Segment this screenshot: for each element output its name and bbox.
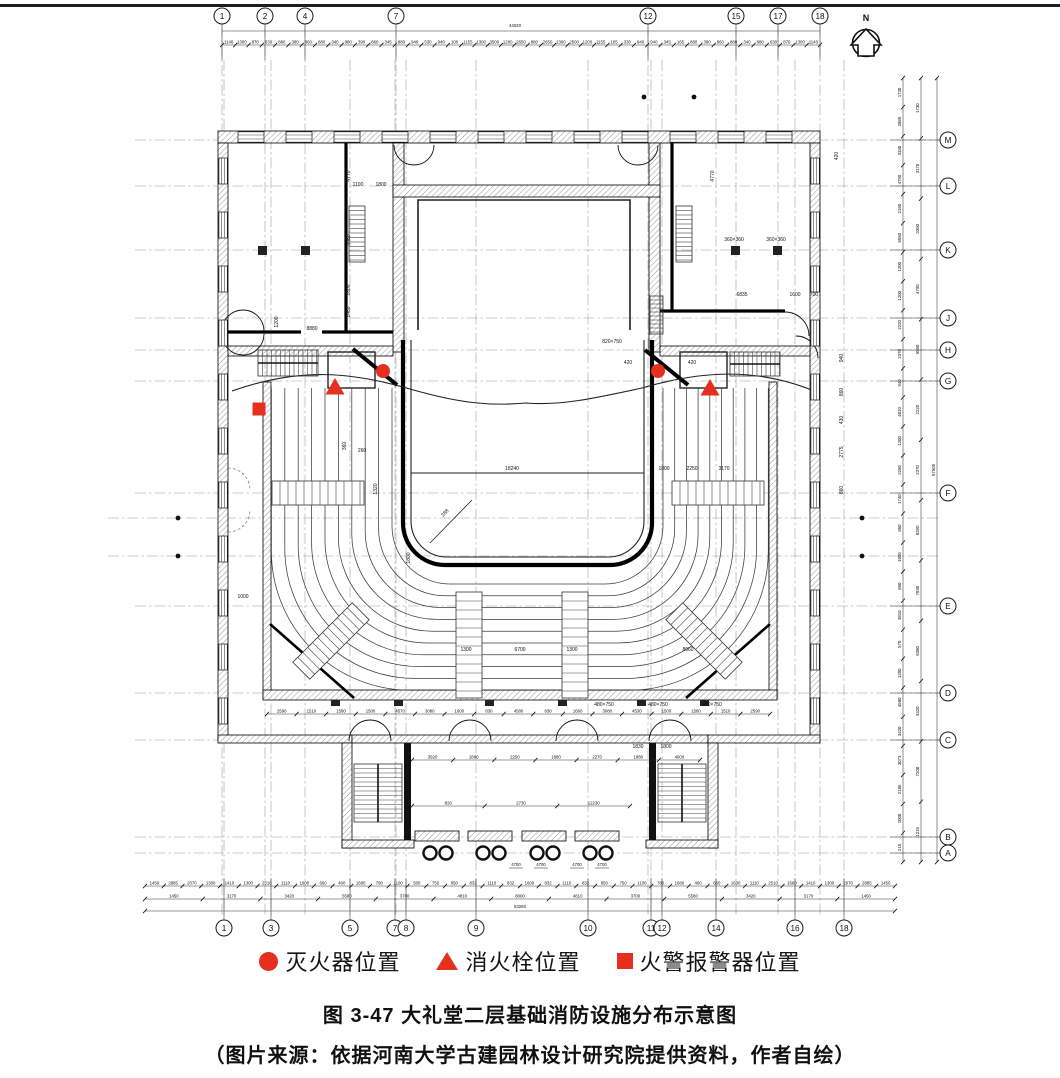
bowl-south-wall (263, 690, 777, 700)
svg-text:1480: 1480 (346, 306, 352, 317)
svg-text:7630: 7630 (915, 585, 920, 595)
svg-text:17: 17 (773, 12, 783, 21)
svg-text:1300: 1300 (566, 647, 577, 653)
svg-text:780: 780 (657, 880, 665, 885)
svg-text:1510: 1510 (307, 708, 317, 713)
svg-text:2250: 2250 (897, 465, 902, 475)
svg-text:2775: 2775 (839, 446, 845, 457)
svg-text:B: B (945, 833, 951, 842)
svg-text:1410: 1410 (225, 880, 235, 885)
svg-text:400: 400 (338, 880, 346, 885)
north-label: N (863, 13, 870, 23)
svg-text:18: 18 (815, 12, 825, 21)
stage-west-wall (393, 143, 404, 352)
svg-text:H: H (945, 346, 951, 355)
fire-extinguisher-marker (651, 364, 665, 378)
svg-text:1110: 1110 (750, 880, 760, 885)
svg-text:1300: 1300 (243, 880, 253, 885)
svg-text:165: 165 (677, 39, 685, 44)
floor-plan-drawing: 4402011401300870630880380860880340880390… (0, 0, 1060, 940)
lobby-north-wall (352, 735, 708, 743)
svg-text:4570: 4570 (395, 708, 405, 713)
svg-text:J: J (946, 314, 950, 323)
svg-text:1155: 1155 (596, 39, 606, 44)
svg-text:2885: 2885 (168, 880, 178, 885)
svg-text:1680: 1680 (675, 880, 685, 885)
svg-text:850: 850 (601, 880, 609, 885)
svg-text:1450: 1450 (881, 880, 891, 885)
svg-text:1800: 1800 (897, 552, 902, 562)
svg-text:2185: 2185 (897, 784, 902, 794)
svg-text:4530: 4530 (632, 708, 642, 713)
svg-text:1200: 1200 (897, 261, 902, 271)
svg-text:345: 345 (664, 39, 672, 44)
svg-text:5580: 5580 (688, 893, 698, 898)
svg-text:880: 880 (757, 39, 765, 44)
svg-text:1320: 1320 (373, 483, 379, 494)
svg-text:5550: 5550 (915, 344, 920, 354)
legend-label: 火警报警器位置 (640, 945, 801, 977)
svg-text:1410: 1410 (806, 880, 816, 885)
svg-text:880: 880 (278, 39, 286, 44)
svg-text:1510: 1510 (721, 708, 731, 713)
svg-text:8060: 8060 (682, 647, 693, 653)
svg-text:C: C (945, 736, 951, 745)
svg-text:1880: 1880 (469, 754, 479, 759)
svg-text:820×750: 820×750 (602, 339, 622, 345)
svg-text:1200: 1200 (583, 39, 593, 44)
svg-text:3350: 3350 (915, 223, 920, 233)
lobby-south-wall-east (646, 840, 718, 848)
figure-page: 4402011401300870630880380860880340880390… (0, 0, 1060, 1078)
entrance-colonnade (415, 831, 619, 860)
svg-text:7: 7 (393, 924, 398, 933)
svg-text:860: 860 (305, 39, 313, 44)
circle-symbol-icon (259, 952, 278, 971)
svg-text:1200: 1200 (897, 436, 902, 446)
svg-text:L: L (946, 182, 951, 191)
svg-text:1730: 1730 (897, 87, 902, 97)
svg-text:4700: 4700 (536, 862, 546, 867)
svg-text:8880: 8880 (306, 326, 317, 332)
svg-text:1200: 1200 (503, 39, 513, 44)
svg-text:12230: 12230 (588, 800, 601, 805)
svg-text:4000: 4000 (675, 754, 685, 759)
columns (258, 246, 782, 255)
svg-text:3080: 3080 (602, 708, 612, 713)
svg-text:2650: 2650 (543, 39, 553, 44)
window-symbols (219, 132, 819, 724)
svg-text:4580: 4580 (514, 708, 524, 713)
svg-text:3810: 3810 (897, 610, 902, 620)
svg-text:4770: 4770 (710, 170, 716, 181)
svg-text:880: 880 (318, 39, 326, 44)
triangle-symbol-icon (436, 952, 458, 970)
svg-text:6835: 6835 (736, 292, 747, 298)
svg-text:2370: 2370 (915, 465, 920, 475)
left-wing-partitions (228, 143, 393, 332)
svg-text:3420: 3420 (746, 893, 756, 898)
svg-text:2885: 2885 (897, 116, 902, 126)
svg-text:A: A (945, 849, 951, 858)
svg-text:16: 16 (790, 924, 800, 933)
svg-text:2070: 2070 (187, 880, 197, 885)
svg-text:1600: 1600 (789, 292, 800, 298)
svg-text:1110: 1110 (487, 880, 497, 885)
svg-text:1215: 1215 (915, 826, 920, 836)
svg-text:3170: 3170 (718, 466, 729, 472)
svg-text:1450: 1450 (861, 893, 871, 898)
svg-text:3420: 3420 (915, 706, 920, 716)
legend-label: 灭火器位置 (285, 945, 400, 977)
svg-text:832: 832 (582, 880, 590, 885)
svg-text:3420: 3420 (284, 893, 294, 898)
svg-text:420: 420 (688, 360, 697, 366)
svg-text:630: 630 (770, 39, 778, 44)
svg-text:1300: 1300 (825, 880, 835, 885)
svg-text:2590: 2590 (277, 708, 287, 713)
svg-text:850: 850 (451, 880, 459, 885)
svg-text:1300: 1300 (460, 647, 471, 653)
svg-text:K: K (945, 246, 951, 255)
ramp-line (430, 500, 472, 543)
svg-text:1600: 1600 (455, 708, 465, 713)
svg-text:880: 880 (690, 39, 698, 44)
lobby-west-wall (342, 743, 352, 848)
svg-text:1100: 1100 (353, 182, 364, 188)
svg-text:345: 345 (385, 39, 393, 44)
svg-text:1140: 1140 (809, 39, 819, 44)
svg-text:8390: 8390 (915, 525, 920, 535)
svg-text:8: 8 (404, 924, 409, 933)
svg-text:1300: 1300 (476, 39, 486, 44)
legend-item-triangle: 消火栓位置 (436, 945, 580, 977)
svg-text:530: 530 (424, 39, 432, 44)
figure-source: （图片来源：依据河南大学古建园林设计研究院提供资料，作者自绘） (0, 1039, 1060, 1068)
svg-text:1880: 1880 (634, 754, 644, 759)
svg-text:3920: 3920 (428, 754, 438, 759)
svg-text:1830: 1830 (632, 744, 643, 750)
fire-safety-markers (253, 364, 720, 416)
svg-text:3080: 3080 (425, 708, 435, 713)
svg-text:1600: 1600 (731, 880, 741, 885)
svg-text:480×750: 480×750 (648, 702, 668, 708)
lobby-south-wall-west (342, 840, 414, 848)
svg-text:4580: 4580 (897, 697, 902, 707)
svg-text:5: 5 (348, 924, 353, 933)
svg-text:360×360: 360×360 (766, 237, 786, 243)
svg-text:1100: 1100 (637, 880, 647, 885)
svg-text:1740: 1740 (897, 494, 902, 504)
fire-extinguisher-marker (376, 364, 390, 378)
svg-text:1500: 1500 (662, 708, 672, 713)
balcony-void-inner (411, 340, 644, 557)
svg-text:10: 10 (583, 924, 593, 933)
fire-alarm-marker (253, 403, 266, 416)
svg-text:1: 1 (220, 12, 225, 21)
svg-text:2220: 2220 (915, 404, 920, 414)
svg-text:4700: 4700 (572, 862, 582, 867)
svg-text:660: 660 (320, 880, 328, 885)
svg-text:830: 830 (485, 708, 493, 713)
svg-text:3700: 3700 (631, 893, 641, 898)
svg-text:4790: 4790 (897, 174, 902, 184)
stage-lining (418, 200, 630, 330)
legend-item-square: 火警报警器位置 (617, 945, 801, 977)
svg-text:1300: 1300 (795, 39, 805, 44)
svg-text:2250: 2250 (686, 466, 697, 472)
svg-text:570: 570 (897, 640, 902, 648)
right-wing-partitions (660, 143, 785, 311)
svg-text:2650: 2650 (516, 39, 526, 44)
svg-text:2160: 2160 (897, 203, 902, 213)
south-wall-west (218, 735, 352, 743)
svg-text:1450: 1450 (150, 880, 160, 885)
svg-text:12: 12 (643, 12, 653, 21)
svg-text:F: F (945, 489, 950, 498)
bowl-west-wall (263, 382, 271, 698)
lobby-east-wall (708, 743, 718, 848)
svg-text:5580: 5580 (342, 893, 352, 898)
svg-text:1000: 1000 (897, 813, 902, 823)
svg-text:1580: 1580 (336, 708, 346, 713)
svg-text:1680: 1680 (356, 880, 366, 885)
staircases (258, 206, 780, 822)
south-wall-east (708, 735, 820, 743)
svg-text:260: 260 (358, 448, 367, 454)
svg-text:700: 700 (810, 292, 819, 298)
svg-text:1155: 1155 (463, 39, 473, 44)
bowl-east-wall (769, 382, 777, 698)
svg-text:1300: 1300 (237, 39, 247, 44)
svg-text:D: D (945, 689, 951, 698)
svg-text:340: 340 (743, 39, 751, 44)
svg-text:860: 860 (371, 39, 379, 44)
svg-text:4: 4 (303, 12, 308, 21)
svg-text:880: 880 (730, 39, 738, 44)
svg-text:1660: 1660 (573, 708, 583, 713)
legend-item-circle: 灭火器位置 (259, 945, 400, 977)
svg-text:2: 2 (263, 12, 268, 21)
lobby-stair-wall-west (404, 743, 411, 840)
svg-text:830: 830 (545, 708, 553, 713)
svg-text:2250: 2250 (510, 754, 520, 759)
svg-text:3170: 3170 (804, 893, 814, 898)
svg-text:420: 420 (834, 152, 840, 161)
stage-east-wall (649, 143, 660, 352)
svg-text:1500: 1500 (366, 708, 376, 713)
svg-text:870: 870 (252, 39, 260, 44)
east-corridor-wall (660, 346, 810, 356)
legend-label: 消火栓位置 (465, 945, 580, 977)
svg-text:630: 630 (265, 39, 273, 44)
svg-text:1800: 1800 (375, 182, 386, 188)
svg-text:4700: 4700 (511, 862, 521, 867)
svg-text:480×750: 480×750 (594, 702, 614, 708)
svg-text:940: 940 (438, 39, 446, 44)
svg-text:360: 360 (342, 442, 348, 451)
svg-text:1600: 1600 (346, 284, 352, 295)
balcony-void-edge (403, 340, 652, 565)
svg-text:12: 12 (657, 924, 667, 933)
svg-text:940: 940 (897, 379, 902, 387)
svg-text:1800: 1800 (406, 552, 412, 563)
svg-text:4810: 4810 (458, 893, 468, 898)
svg-text:4810: 4810 (897, 407, 902, 417)
svg-text:380: 380 (703, 39, 711, 44)
svg-text:940: 940 (637, 39, 645, 44)
stage-north-wall (393, 185, 660, 197)
svg-text:6380: 6380 (915, 646, 920, 656)
legend: 灭火器位置消火栓位置火警报警器位置 (0, 942, 1060, 980)
svg-text:1200: 1200 (897, 290, 902, 300)
svg-text:9: 9 (474, 924, 479, 933)
svg-text:18: 18 (839, 924, 849, 933)
svg-text:750: 750 (432, 880, 440, 885)
svg-text:2730: 2730 (516, 800, 526, 805)
svg-text:18240: 18240 (505, 466, 519, 472)
svg-text:2885: 2885 (862, 880, 872, 885)
svg-text:4810: 4810 (573, 893, 583, 898)
lobby-stair-wall-east (649, 743, 656, 840)
svg-text:860: 860 (839, 486, 845, 495)
svg-text:4700: 4700 (597, 862, 607, 867)
svg-text:3: 3 (269, 924, 274, 933)
svg-text:2510: 2510 (768, 880, 778, 885)
svg-text:820: 820 (445, 800, 453, 805)
svg-text:3170: 3170 (915, 163, 920, 173)
svg-text:3420: 3420 (897, 726, 902, 736)
svg-text:380: 380 (292, 39, 300, 44)
svg-text:880: 880 (398, 39, 406, 44)
svg-text:3170: 3170 (227, 893, 237, 898)
svg-text:360×360: 360×360 (724, 237, 744, 243)
svg-text:500: 500 (413, 880, 421, 885)
svg-text:1110: 1110 (562, 880, 572, 885)
svg-text:1660: 1660 (787, 880, 797, 885)
svg-text:3500: 3500 (490, 39, 500, 44)
svg-text:3330: 3330 (897, 145, 902, 155)
svg-text:M: M (945, 136, 952, 145)
svg-text:940: 940 (411, 39, 419, 44)
svg-text:790: 790 (376, 880, 384, 885)
svg-text:6700: 6700 (514, 647, 525, 653)
svg-text:1000: 1000 (237, 594, 248, 600)
svg-text:850: 850 (897, 582, 902, 590)
svg-text:53280: 53280 (514, 904, 527, 909)
svg-text:832: 832 (507, 880, 515, 885)
svg-text:1880: 1880 (551, 754, 561, 759)
svg-text:215: 215 (897, 843, 902, 851)
svg-text:940: 940 (650, 39, 658, 44)
svg-text:2590: 2590 (750, 708, 760, 713)
svg-text:1110: 1110 (281, 880, 291, 885)
svg-text:860: 860 (717, 39, 725, 44)
svg-text:4770: 4770 (346, 170, 352, 181)
svg-text:1730: 1730 (915, 103, 920, 113)
square-symbol-icon (617, 953, 633, 969)
svg-text:4790: 4790 (915, 284, 920, 294)
svg-text:14: 14 (711, 924, 721, 933)
svg-text:288: 288 (440, 508, 450, 518)
dashed-door-arcs (228, 468, 250, 532)
svg-text:1140: 1140 (224, 39, 234, 44)
svg-text:1200: 1200 (897, 668, 902, 678)
svg-text:E: E (945, 602, 951, 611)
svg-text:8000: 8000 (515, 893, 525, 898)
svg-text:165: 165 (610, 39, 618, 44)
svg-text:1300: 1300 (206, 880, 216, 885)
svg-text:1600: 1600 (525, 880, 535, 885)
svg-text:1800: 1800 (658, 466, 669, 472)
svg-text:880: 880 (531, 39, 539, 44)
svg-text:870: 870 (783, 39, 791, 44)
svg-text:2070: 2070 (843, 880, 853, 885)
svg-text:750: 750 (620, 880, 628, 885)
svg-text:480×750: 480×750 (702, 702, 722, 708)
svg-text:7: 7 (394, 12, 399, 21)
svg-text:G: G (945, 377, 951, 386)
north-arrow: N (851, 13, 881, 57)
svg-text:1800: 1800 (660, 744, 671, 750)
svg-text:4480: 4480 (346, 234, 352, 245)
svg-text:2500: 2500 (569, 39, 579, 44)
svg-text:57505: 57505 (931, 463, 936, 476)
west-corridor-wall (228, 346, 393, 356)
svg-text:390: 390 (358, 39, 366, 44)
svg-text:7200: 7200 (915, 766, 920, 776)
svg-text:1200: 1200 (274, 316, 280, 327)
svg-text:44020: 44020 (509, 23, 522, 28)
svg-text:2220: 2220 (897, 319, 902, 329)
svg-text:1580: 1580 (691, 708, 701, 713)
svg-text:2270: 2270 (592, 754, 602, 759)
svg-text:330: 330 (624, 39, 632, 44)
svg-text:1450: 1450 (169, 893, 179, 898)
svg-text:1: 1 (222, 924, 227, 933)
svg-text:1900: 1900 (300, 880, 310, 885)
svg-text:832: 832 (545, 880, 553, 885)
svg-text:850: 850 (897, 524, 902, 532)
svg-text:15: 15 (731, 12, 741, 21)
svg-text:860: 860 (839, 388, 845, 397)
svg-text:1300: 1300 (556, 39, 566, 44)
svg-text:400: 400 (695, 880, 703, 885)
svg-text:3073: 3073 (897, 755, 902, 765)
svg-text:340: 340 (331, 39, 339, 44)
svg-text:3700: 3700 (400, 893, 410, 898)
figure-caption: 图 3-47 大礼堂二层基础消防设施分布示意图 (0, 999, 1060, 1028)
fire-hydrant-marker (701, 379, 720, 396)
svg-text:5550: 5550 (897, 232, 902, 242)
svg-text:880: 880 (345, 39, 353, 44)
svg-text:100: 100 (451, 39, 459, 44)
svg-text:430: 430 (839, 416, 845, 425)
svg-text:940: 940 (839, 354, 845, 363)
svg-text:420: 420 (624, 360, 633, 366)
svg-text:660: 660 (713, 880, 721, 885)
